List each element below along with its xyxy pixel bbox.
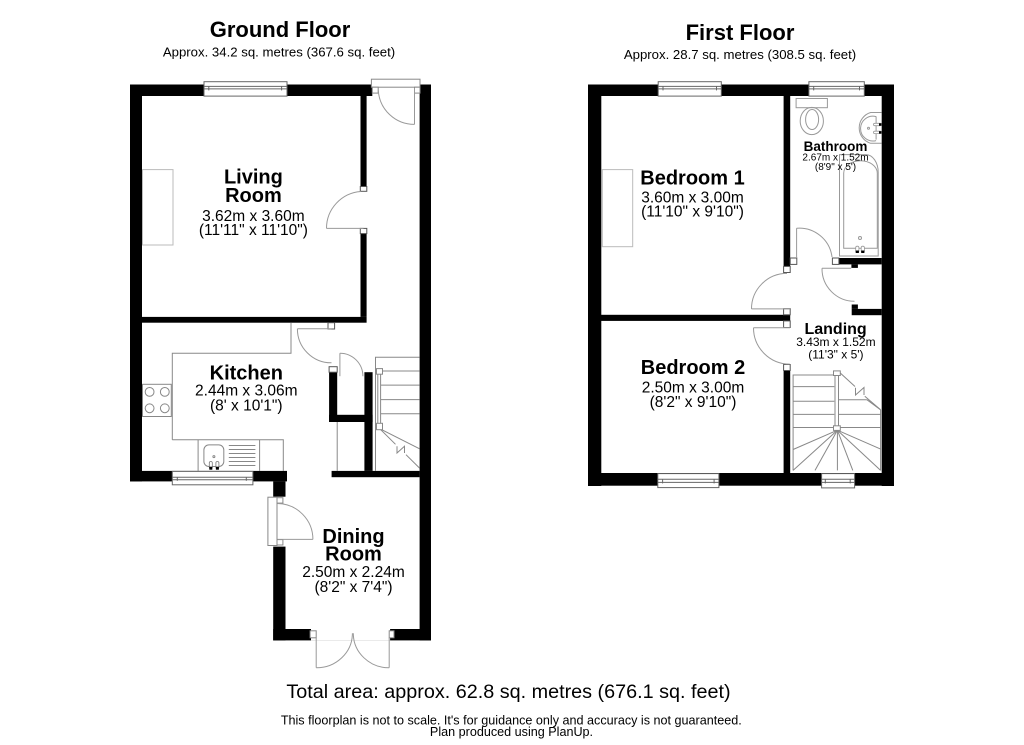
svg-text:Room: Room xyxy=(225,185,282,207)
svg-text:Total area: approx. 62.8 sq. m: Total area: approx. 62.8 sq. metres (676… xyxy=(286,681,730,703)
svg-text:Approx. 28.7 sq. metres (308.5: Approx. 28.7 sq. metres (308.5 sq. feet) xyxy=(624,47,856,62)
svg-text:First Floor: First Floor xyxy=(686,20,795,45)
svg-text:(11'3" x 5'): (11'3" x 5') xyxy=(808,348,863,362)
svg-text:(11'10" x 9'10"): (11'10" x 9'10") xyxy=(641,204,744,221)
svg-text:Bedroom 2: Bedroom 2 xyxy=(641,357,745,379)
svg-text:Room: Room xyxy=(325,544,382,566)
svg-text:(8'2" x 9'10"): (8'2" x 9'10") xyxy=(650,394,737,411)
svg-text:Bedroom 1: Bedroom 1 xyxy=(640,168,744,190)
svg-text:(8'9" x 5'): (8'9" x 5') xyxy=(815,162,856,173)
svg-text:(8'2" x 7'4"): (8'2" x 7'4") xyxy=(314,579,392,596)
svg-text:Kitchen: Kitchen xyxy=(210,362,283,384)
svg-text:(11'11" x 11'10"): (11'11" x 11'10") xyxy=(199,222,308,239)
svg-text:Approx. 34.2 sq. metres (367.6: Approx. 34.2 sq. metres (367.6 sq. feet) xyxy=(163,45,395,60)
svg-text:Ground Floor: Ground Floor xyxy=(210,17,351,42)
svg-text:(8' x 10'1"): (8' x 10'1") xyxy=(210,398,283,415)
svg-text:Plan produced using PlanUp.: Plan produced using PlanUp. xyxy=(430,725,593,739)
